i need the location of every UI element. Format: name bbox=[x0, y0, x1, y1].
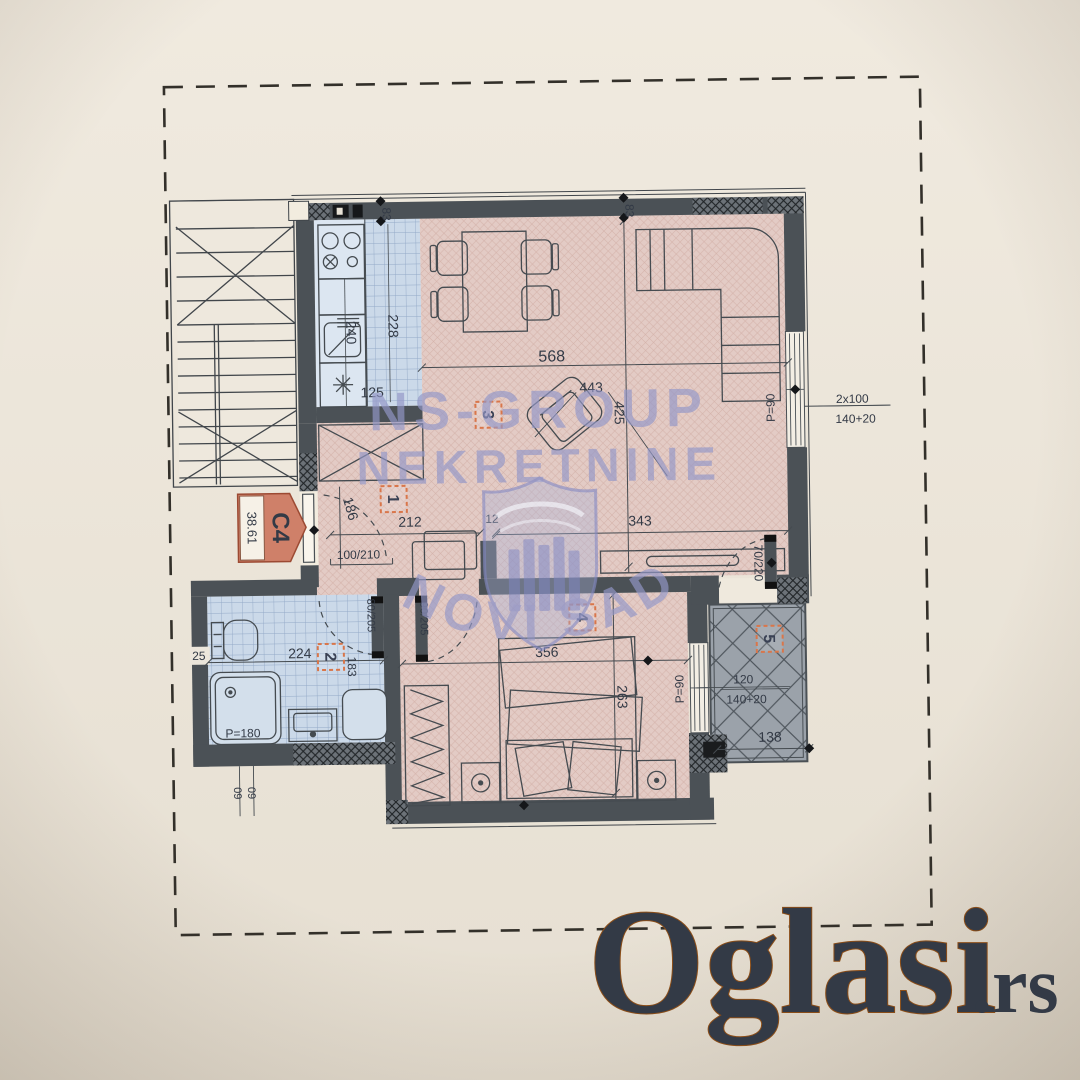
logo-tld-text: .rs bbox=[972, 942, 1059, 1030]
logo-brand-text: Oglasi bbox=[588, 879, 996, 1045]
floorplan-svg: 83 83 240 228 125 568 443 425 3 2x100 14… bbox=[0, 0, 1080, 1080]
site-logo: Oglasi .rs bbox=[588, 879, 1059, 1045]
floorplan-photo: 83 83 240 228 125 568 443 425 3 2x100 14… bbox=[0, 0, 1080, 1080]
